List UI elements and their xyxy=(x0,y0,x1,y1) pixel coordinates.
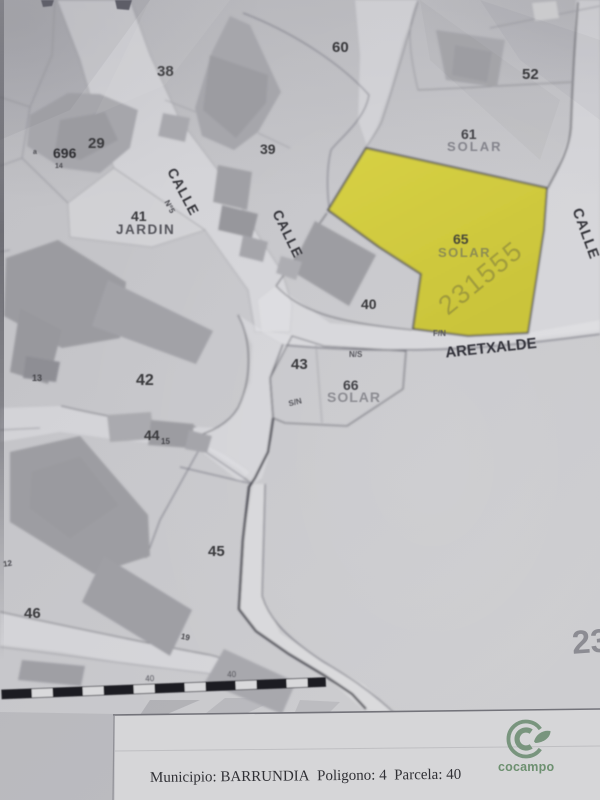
svg-text:231: 231 xyxy=(571,620,600,661)
svg-text:SOLAR: SOLAR xyxy=(447,139,503,154)
svg-text:14: 14 xyxy=(55,163,63,170)
svg-text:45: 45 xyxy=(208,543,225,560)
svg-text:15: 15 xyxy=(161,437,170,446)
svg-text:JARDIN: JARDIN xyxy=(116,222,175,237)
svg-text:Municipio: BARRUNDIA Poligono: Municipio: BARRUNDIA Poligono: 4 Parcela… xyxy=(150,767,461,786)
svg-text:13: 13 xyxy=(32,373,42,383)
svg-text:12: 12 xyxy=(3,559,14,569)
svg-text:42: 42 xyxy=(136,372,154,389)
svg-text:cocampo: cocampo xyxy=(498,760,554,774)
svg-text:40: 40 xyxy=(227,670,237,679)
svg-text:29: 29 xyxy=(88,135,105,152)
svg-text:SOLAR: SOLAR xyxy=(327,389,381,405)
svg-text:40: 40 xyxy=(361,296,377,312)
svg-text:39: 39 xyxy=(260,141,276,157)
svg-text:F/N: F/N xyxy=(433,329,446,338)
svg-text:N/S: N/S xyxy=(349,350,363,359)
svg-text:60: 60 xyxy=(332,39,349,56)
svg-text:43: 43 xyxy=(291,356,308,373)
svg-text:44: 44 xyxy=(144,427,160,443)
svg-text:46: 46 xyxy=(24,605,41,622)
svg-text:696: 696 xyxy=(53,145,77,161)
svg-text:a: a xyxy=(33,149,37,156)
svg-text:40: 40 xyxy=(145,674,155,683)
